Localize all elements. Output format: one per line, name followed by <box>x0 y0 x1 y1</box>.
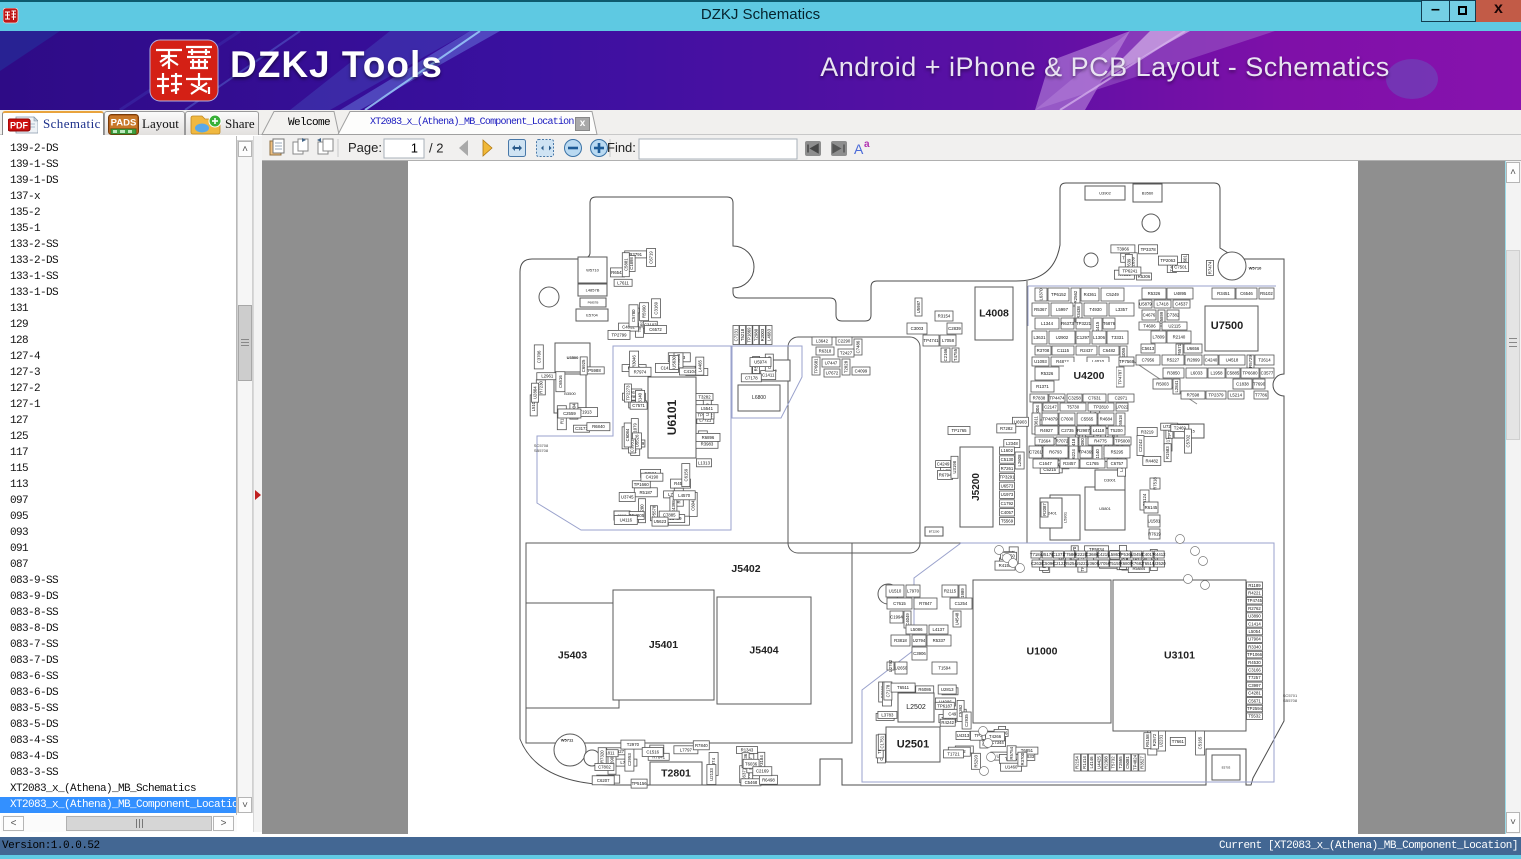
svg-text:TP4745: TP4745 <box>1247 598 1263 603</box>
svg-text:C2953: C2953 <box>627 753 632 766</box>
svg-text:R2003: R2003 <box>760 328 765 341</box>
svg-text:L7058: L7058 <box>942 338 955 343</box>
svg-text:U7447: U7447 <box>825 361 838 366</box>
svg-text:U5801: U5801 <box>1099 506 1112 511</box>
svg-text:U5974: U5974 <box>754 360 767 365</box>
svg-text:U3902: U3902 <box>1099 191 1112 196</box>
svg-text:L7418: L7418 <box>1157 302 1170 307</box>
svg-text:R4482: R4482 <box>1145 458 1158 463</box>
svg-text:C6207: C6207 <box>597 778 610 783</box>
svg-text:C4281: C4281 <box>1248 691 1261 696</box>
svg-text:U2813: U2813 <box>941 687 954 692</box>
svg-text:TP6241: TP6241 <box>1122 269 1138 274</box>
svg-text:C7956: C7956 <box>1142 358 1155 363</box>
svg-text:R6498: R6498 <box>762 777 775 782</box>
svg-text:Page:: Page: <box>348 140 382 155</box>
svg-text:C7600: C7600 <box>1061 417 1074 422</box>
svg-text:TP1066: TP1066 <box>1247 652 1263 657</box>
svg-text:R2762: R2762 <box>1248 606 1261 611</box>
svg-text:T2664: T2664 <box>1038 439 1051 444</box>
svg-text:C1297: C1297 <box>1077 335 1090 340</box>
svg-text:J5402: J5402 <box>731 563 760 575</box>
svg-text:R3527: R3527 <box>1140 756 1145 769</box>
svg-text:L3631: L3631 <box>1034 335 1047 340</box>
svg-text:TP5988: TP5988 <box>586 368 602 373</box>
svg-text:L2502: L2502 <box>906 704 926 711</box>
svg-text:L2841: L2841 <box>1174 380 1179 393</box>
svg-text:R7838: R7838 <box>1033 396 1046 401</box>
svg-text:L1344: L1344 <box>1041 321 1054 326</box>
svg-text:T1594: T1594 <box>938 666 951 671</box>
svg-text:Find:: Find: <box>607 140 636 155</box>
svg-text:/ 2: / 2 <box>429 141 443 156</box>
svg-text:R6896: R6896 <box>702 435 715 440</box>
svg-text:C2935: C2935 <box>964 714 969 727</box>
svg-text:C2166: C2166 <box>943 348 948 361</box>
svg-text:T6876: T6876 <box>1103 321 1116 326</box>
svg-text:R4927: R4927 <box>1040 428 1053 433</box>
svg-text:L5541: L5541 <box>701 406 714 411</box>
svg-text:U6101: U6101 <box>665 400 679 436</box>
svg-text:C2839: C2839 <box>948 326 961 331</box>
svg-text:C3258: C3258 <box>1068 396 1081 401</box>
svg-text:L6370: L6370 <box>1039 288 1044 301</box>
svg-text:TP7569: TP7569 <box>1119 359 1135 364</box>
svg-text:L2961: L2961 <box>541 374 554 379</box>
svg-text:L4465: L4465 <box>697 360 702 373</box>
svg-text:C2735: C2735 <box>1061 428 1074 433</box>
svg-text:R4530: R4530 <box>1248 660 1261 665</box>
svg-text:TP4824: TP4824 <box>1132 754 1137 770</box>
svg-text:R6793: R6793 <box>1049 450 1062 455</box>
svg-text:C1898: C1898 <box>629 257 634 270</box>
svg-text:R7320: R7320 <box>600 750 605 763</box>
svg-text:1: 1 <box>411 141 418 156</box>
svg-text:R5326: R5326 <box>1148 291 1161 296</box>
svg-text:E5703: E5703 <box>1222 766 1231 770</box>
svg-text:L7809: L7809 <box>1153 335 1166 340</box>
svg-text:U4425: U4425 <box>1096 756 1101 769</box>
svg-text:L3783: L3783 <box>881 712 894 717</box>
svg-text:T4930: T4930 <box>1089 307 1102 312</box>
svg-text:SB5708: SB5708 <box>1283 698 1298 703</box>
svg-text:T1913: T1913 <box>580 410 593 415</box>
svg-text:R6318: R6318 <box>819 349 832 354</box>
svg-text:C3003: C3003 <box>911 326 924 331</box>
svg-text:L5054: L5054 <box>1249 629 1262 634</box>
svg-text:C1647: C1647 <box>1039 461 1052 466</box>
svg-text:R5990: R5990 <box>642 305 647 318</box>
svg-text:R1414: R1414 <box>1082 756 1087 769</box>
svg-text:J5200: J5200 <box>971 473 982 501</box>
svg-text:R3046: R3046 <box>632 355 637 368</box>
svg-text:B3500: B3500 <box>564 391 576 396</box>
svg-text:C6719: C6719 <box>649 251 654 264</box>
svg-text:R5337: R5337 <box>933 638 946 643</box>
svg-text:C3706: C3706 <box>536 350 541 363</box>
svg-text:C7615: C7615 <box>893 601 906 606</box>
svg-text:R3983: R3983 <box>701 441 714 446</box>
svg-text:T7257: T7257 <box>1248 675 1261 680</box>
svg-text:R4684: R4684 <box>1100 417 1113 422</box>
svg-text:W5710: W5710 <box>586 268 599 273</box>
svg-text:R2115: R2115 <box>944 589 957 594</box>
svg-text:C5780: C5780 <box>631 309 636 322</box>
svg-text:TP3378: TP3378 <box>1141 247 1157 252</box>
svg-text:U7672: U7672 <box>826 371 839 376</box>
svg-text:U5879: U5879 <box>1139 302 1152 307</box>
svg-text:TP5000: TP5000 <box>1115 439 1131 444</box>
svg-text:TP3221: TP3221 <box>1076 321 1092 326</box>
svg-text:C5885: C5885 <box>1227 371 1240 376</box>
svg-text:R3818: R3818 <box>894 638 907 643</box>
svg-text:TP6187: TP6187 <box>937 703 953 708</box>
svg-text:E5704: E5704 <box>586 313 598 318</box>
svg-text:R2987: R2987 <box>1077 428 1090 433</box>
svg-text:U3890: U3890 <box>1248 614 1261 619</box>
svg-text:C6482: C6482 <box>1103 348 1116 353</box>
svg-text:R2308: R2308 <box>1104 756 1109 769</box>
svg-text:R7282: R7282 <box>1000 426 1013 431</box>
svg-text:C5249: C5249 <box>1106 292 1119 297</box>
svg-text:U2792: U2792 <box>888 659 893 672</box>
svg-text:C6516: C6516 <box>558 375 563 388</box>
svg-text:U6656: U6656 <box>1187 346 1200 351</box>
svg-text:TP2379: TP2379 <box>1208 393 1224 398</box>
svg-text:L2348: L2348 <box>1006 441 1019 446</box>
svg-text:R6840: R6840 <box>592 424 605 429</box>
svg-text:TP2810: TP2810 <box>1093 405 1109 410</box>
svg-text:U3500: U3500 <box>567 355 580 360</box>
svg-text:C4240: C4240 <box>1205 358 1218 363</box>
svg-text:R7261: R7261 <box>1001 466 1014 471</box>
svg-text:R7598: R7598 <box>1187 393 1200 398</box>
svg-text:C5468: C5468 <box>745 780 758 785</box>
svg-text:J5403: J5403 <box>558 650 587 662</box>
svg-text:R5102: R5102 <box>1260 291 1273 296</box>
svg-text:J5401: J5401 <box>649 639 678 651</box>
svg-text:U2804: U2804 <box>533 386 538 399</box>
svg-text:T3282: T3282 <box>698 395 711 400</box>
svg-text:R7072: R7072 <box>1056 439 1069 444</box>
svg-text:R5729: R5729 <box>1248 355 1253 368</box>
svg-text:R3154: R3154 <box>938 314 951 319</box>
svg-text:C7571: C7571 <box>632 403 645 408</box>
svg-text:TP2594: TP2594 <box>1247 706 1263 711</box>
svg-text:T2828: T2828 <box>844 360 849 373</box>
svg-text:C1414: C1414 <box>1248 621 1261 626</box>
svg-text:PADS: PADS <box>111 118 137 129</box>
svg-text:C1994: C1994 <box>890 615 903 620</box>
svg-text:C7261: C7261 <box>1029 450 1042 455</box>
svg-text:L3642: L3642 <box>816 339 829 344</box>
svg-text:L5997: L5997 <box>1056 307 1069 312</box>
svg-text:T7786: T7786 <box>1255 393 1268 398</box>
svg-text:C1254: C1254 <box>955 601 968 606</box>
svg-text:TP4741: TP4741 <box>923 338 939 343</box>
svg-text:T3966: T3966 <box>1117 246 1130 251</box>
svg-text:C6546: C6546 <box>1240 291 1253 296</box>
svg-text:U7500: U7500 <box>1211 320 1243 332</box>
svg-text:R2087: R2087 <box>1042 503 1047 516</box>
svg-text:U1000: U1000 <box>1027 646 1058 658</box>
svg-text:L7970: L7970 <box>907 589 920 594</box>
svg-text:R2437: R2437 <box>1080 348 1093 353</box>
svg-text:C2242: C2242 <box>1138 439 1143 452</box>
svg-text:TP6152: TP6152 <box>1051 292 1067 297</box>
svg-text:C5130: C5130 <box>1001 457 1014 462</box>
svg-text:TP4369: TP4369 <box>1078 450 1094 455</box>
svg-text:R3708: R3708 <box>1037 348 1050 353</box>
svg-text:C4676: C4676 <box>1143 313 1156 318</box>
svg-text:U2794: U2794 <box>913 638 926 643</box>
svg-text:T2801: T2801 <box>661 768 691 780</box>
svg-text:C4537: C4537 <box>1175 302 1188 307</box>
svg-text:R1583: R1583 <box>1165 446 1170 459</box>
svg-text:U1093: U1093 <box>1034 359 1047 364</box>
svg-text:U5987: U5987 <box>916 300 921 313</box>
svg-text:C3906: C3906 <box>913 651 926 656</box>
svg-text:TP5156: TP5156 <box>632 781 648 786</box>
svg-text:TP2063: TP2063 <box>1160 258 1176 263</box>
svg-text:R4775: R4775 <box>1094 439 1107 444</box>
svg-text:L7611: L7611 <box>617 280 629 285</box>
svg-text:R3438: R3438 <box>1076 306 1081 319</box>
svg-text:R7518: R7518 <box>1153 477 1158 490</box>
svg-text:L3357: L3357 <box>1116 307 1129 312</box>
svg-text:C4057: C4057 <box>1001 510 1014 515</box>
svg-text:C3171: C3171 <box>575 426 588 431</box>
svg-text:C2559: C2559 <box>563 411 576 416</box>
svg-text:C7486: C7486 <box>856 340 861 353</box>
svg-text:R5003: R5003 <box>1156 382 1169 387</box>
svg-text:T2970: T2970 <box>627 742 640 747</box>
svg-text:TP1660: TP1660 <box>634 482 650 487</box>
svg-text:U2231: U2231 <box>1159 734 1164 747</box>
svg-text:C5565: C5565 <box>1081 417 1094 422</box>
svg-text:C1838: C1838 <box>1236 382 1249 387</box>
svg-text:T7661: T7661 <box>1172 739 1185 744</box>
svg-text:R5293: R5293 <box>973 754 978 767</box>
svg-text:L5214: L5214 <box>1230 393 1243 398</box>
svg-text:L4857B: L4857B <box>586 288 600 293</box>
svg-text:TP6681: TP6681 <box>814 358 819 374</box>
svg-text:T3331: T3331 <box>1111 335 1124 340</box>
svg-text:C5881: C5881 <box>623 258 628 271</box>
svg-text:R5187: R5187 <box>639 490 652 495</box>
svg-text:B3560: B3560 <box>1142 191 1154 196</box>
svg-text:C2147: C2147 <box>1044 405 1057 410</box>
svg-text:R2899: R2899 <box>1187 358 1200 363</box>
svg-text:TP2799: TP2799 <box>611 332 627 337</box>
svg-text:L2608: L2608 <box>1017 454 1022 467</box>
svg-text:R3457: R3457 <box>1063 461 1076 466</box>
svg-text:C1115: C1115 <box>1057 348 1070 353</box>
svg-text:C6084: C6084 <box>625 428 630 441</box>
svg-text:R1343: R1343 <box>741 748 754 753</box>
svg-text:T5218: T5218 <box>740 328 745 341</box>
svg-text:U2501: U2501 <box>897 739 929 751</box>
svg-text:T5532: T5532 <box>1248 714 1261 719</box>
svg-text:U4116: U4116 <box>620 518 633 523</box>
svg-text:C3166: C3166 <box>1248 668 1261 673</box>
svg-text:U7022: U7022 <box>1116 405 1129 410</box>
svg-text:C5702: C5702 <box>1185 434 1190 447</box>
svg-text:A: A <box>854 141 864 157</box>
svg-text:R5158: R5158 <box>1145 734 1150 747</box>
svg-text:R3340: R3340 <box>1248 644 1261 649</box>
svg-text:C3169: C3169 <box>654 301 659 314</box>
svg-text:T4266: T4266 <box>989 734 1002 739</box>
svg-text:C7178: C7178 <box>745 375 758 380</box>
svg-text:R3850: R3850 <box>1167 371 1180 376</box>
svg-text:C7631: C7631 <box>1088 396 1101 401</box>
svg-text:J5404: J5404 <box>749 645 778 657</box>
svg-text:TP4787: TP4787 <box>1118 369 1123 385</box>
svg-text:R6145: R6145 <box>1145 505 1158 510</box>
svg-text:R7840: R7840 <box>695 743 708 748</box>
svg-text:BT2200: BT2200 <box>929 530 940 534</box>
svg-text:U5630: U5630 <box>671 355 676 368</box>
svg-text:C1751: C1751 <box>879 735 884 748</box>
svg-text:L4137: L4137 <box>933 627 946 632</box>
svg-text:D3001: D3001 <box>1104 478 1117 483</box>
svg-text:R5754: R5754 <box>1009 746 1014 759</box>
svg-text:C2971: C2971 <box>1115 396 1128 401</box>
svg-text:T2555: T2555 <box>1118 756 1123 769</box>
svg-text:T2980: T2980 <box>753 328 758 341</box>
svg-text:U3520: U3520 <box>1153 561 1166 566</box>
svg-text:R1371: R1371 <box>1036 384 1049 389</box>
svg-text:L1602: L1602 <box>1001 448 1014 453</box>
svg-text:C4249: C4249 <box>937 462 950 467</box>
svg-text:C7802: C7802 <box>598 765 611 770</box>
svg-text:TP1765: TP1765 <box>951 428 967 433</box>
svg-text:T1721: T1721 <box>947 751 960 756</box>
svg-text:U4548: U4548 <box>955 612 960 625</box>
svg-text:C6572: C6572 <box>649 327 662 332</box>
svg-text:TP4474: TP4474 <box>1049 396 1065 401</box>
svg-text:U2115: U2115 <box>1168 324 1181 329</box>
svg-text:C1792: C1792 <box>1001 501 1014 506</box>
svg-text:R7474: R7474 <box>1208 261 1213 274</box>
svg-text:C3997: C3997 <box>1248 683 1261 688</box>
svg-text:L4683: L4683 <box>767 328 772 341</box>
svg-text:TP2273: TP2273 <box>625 385 630 401</box>
svg-text:R2140: R2140 <box>1173 335 1186 340</box>
svg-text:U1973: U1973 <box>1001 492 1014 497</box>
svg-text:T4755: T4755 <box>953 348 958 361</box>
svg-text:C6159: C6159 <box>683 468 688 481</box>
svg-text:P6857B: P6857B <box>588 301 599 305</box>
svg-text:U2650: U2650 <box>895 666 908 671</box>
svg-text:C7178: C7178 <box>885 684 890 697</box>
svg-text:T5200: T5200 <box>1110 428 1123 433</box>
svg-text:T6036: T6036 <box>745 761 758 766</box>
svg-text:U3745: U3745 <box>621 495 634 500</box>
svg-text:R5326: R5326 <box>1041 371 1054 376</box>
svg-text:T5569: T5569 <box>1001 519 1014 524</box>
svg-text:C7231: C7231 <box>734 328 739 341</box>
svg-text:T4606: T4606 <box>1143 324 1156 329</box>
svg-text:R7847: R7847 <box>919 601 932 606</box>
svg-text:T5730: T5730 <box>1067 405 1080 410</box>
svg-text:C6925: C6925 <box>581 359 586 372</box>
svg-text:U5623: U5623 <box>654 519 667 524</box>
svg-text:C6757: C6757 <box>1111 461 1124 466</box>
svg-text:W5711: W5711 <box>561 738 574 743</box>
svg-text:R5367: R5367 <box>1034 307 1047 312</box>
svg-text:C1516: C1516 <box>646 750 659 755</box>
svg-text:L4146: L4146 <box>1089 756 1094 769</box>
svg-text:TP1869: TP1869 <box>747 327 752 343</box>
svg-text:T7690: T7690 <box>1253 382 1266 387</box>
svg-text:R4361: R4361 <box>1084 292 1097 297</box>
svg-text:C4099: C4099 <box>855 369 868 374</box>
svg-text:R6373: R6373 <box>1061 321 1074 326</box>
svg-text:R4221: R4221 <box>1248 591 1261 596</box>
svg-text:T5732: T5732 <box>1111 756 1116 769</box>
svg-text:U1581: U1581 <box>1148 519 1161 524</box>
svg-text:C1411: C1411 <box>762 373 775 378</box>
svg-text:L5086: L5086 <box>911 627 924 632</box>
svg-text:R4242: R4242 <box>941 720 954 725</box>
svg-text:TP4879: TP4879 <box>1042 417 1058 422</box>
svg-text:T2614: T2614 <box>1258 358 1271 363</box>
svg-text:T6511: T6511 <box>897 685 909 690</box>
svg-text:U1510: U1510 <box>889 589 902 594</box>
svg-text:C5081: C5081 <box>1125 756 1130 769</box>
svg-text:L4118: L4118 <box>1093 428 1105 433</box>
svg-text:R7230: R7230 <box>538 380 543 393</box>
svg-text:W5710: W5710 <box>1249 266 1262 271</box>
svg-text:C1765: C1765 <box>1086 461 1099 466</box>
svg-text:C2169: C2169 <box>756 769 769 774</box>
svg-text:R7974: R7974 <box>634 369 647 374</box>
svg-text:R6794: R6794 <box>939 472 952 477</box>
svg-text:R5295: R5295 <box>1111 450 1124 455</box>
svg-text:R4412: R4412 <box>1153 552 1166 557</box>
svg-text:R2572: R2572 <box>1152 733 1157 746</box>
svg-text:PDF: PDF <box>10 121 29 131</box>
svg-text:TP6680: TP6680 <box>1242 371 1258 376</box>
svg-text:L1958: L1958 <box>1211 371 1224 376</box>
svg-text:C5613: C5613 <box>1142 346 1155 351</box>
svg-text:L5801: L5801 <box>1063 511 1068 523</box>
svg-text:R6086: R6086 <box>918 687 931 692</box>
svg-text:T2427: T2427 <box>840 351 853 356</box>
svg-text:L6800: L6800 <box>752 395 766 401</box>
svg-text:R3700: R3700 <box>1020 752 1025 765</box>
svg-text:U1460: U1460 <box>1005 765 1018 770</box>
svg-text:C5165: C5165 <box>1198 736 1203 749</box>
svg-text:U2133: U2133 <box>709 768 714 781</box>
svg-text:L1313: L1313 <box>698 460 711 465</box>
svg-text:U3101: U3101 <box>1164 650 1195 662</box>
svg-text:C4049: C4049 <box>905 613 910 626</box>
svg-text:L4008: L4008 <box>979 308 1009 320</box>
svg-text:U3198: U3198 <box>952 460 957 473</box>
svg-text:R2562: R2562 <box>1073 290 1078 303</box>
svg-text:R7619: R7619 <box>1148 532 1161 537</box>
svg-text:U4313: U4313 <box>957 733 970 738</box>
svg-text:L7797: L7797 <box>680 747 693 752</box>
svg-text:L6033: L6033 <box>1191 371 1204 376</box>
svg-text:R1189: R1189 <box>1248 583 1261 588</box>
svg-text:C7382: C7382 <box>1167 313 1180 318</box>
svg-text:a: a <box>864 139 870 150</box>
svg-text:R3219: R3219 <box>1141 430 1154 435</box>
